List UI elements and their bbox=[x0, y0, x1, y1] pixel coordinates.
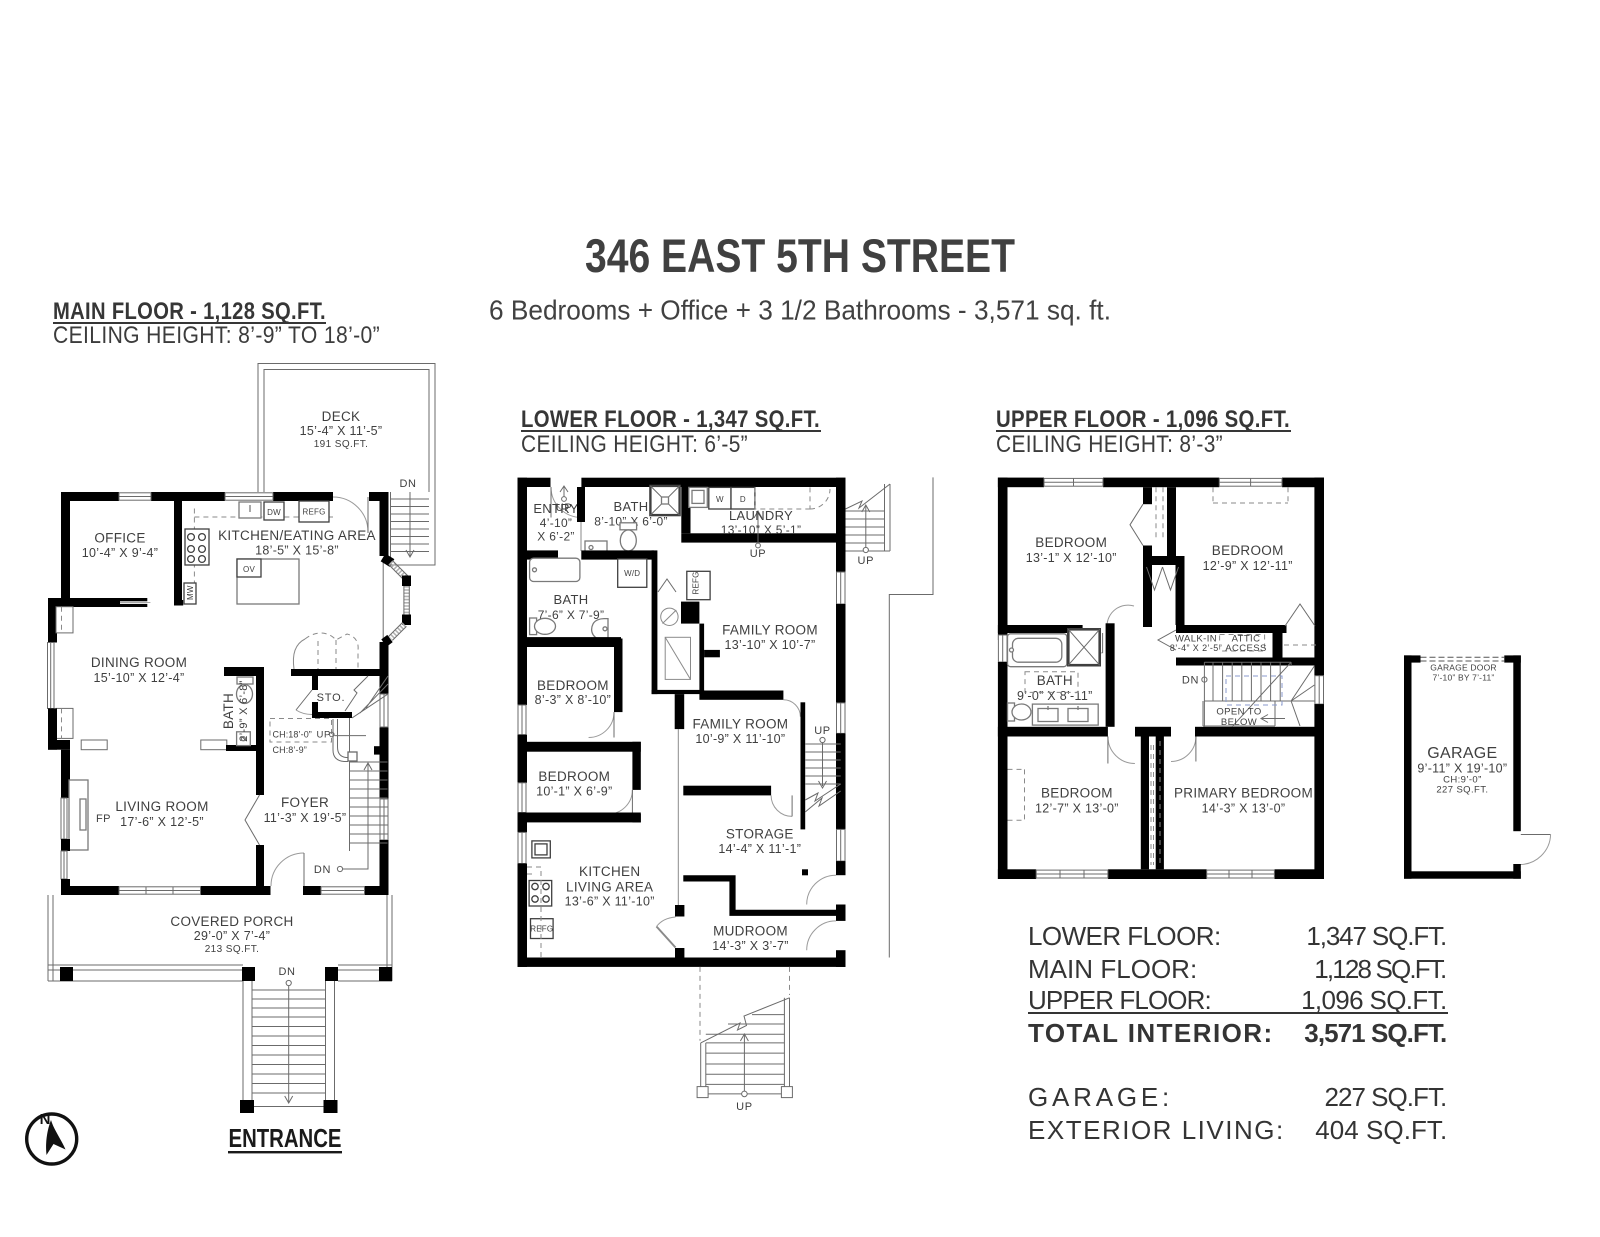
svg-text:13’-1” X 12’-10”: 13’-1” X 12’-10” bbox=[1026, 551, 1117, 565]
svg-text:W/D: W/D bbox=[624, 569, 640, 578]
svg-text:15’-4” X 11’-5”: 15’-4” X 11’-5” bbox=[300, 424, 383, 438]
svg-text:UP: UP bbox=[858, 555, 874, 567]
svg-text:12’-7” X 13’-0”: 12’-7” X 13’-0” bbox=[1035, 802, 1119, 816]
svg-text:MUDROOM: MUDROOM bbox=[713, 924, 788, 939]
svg-text:29’-0” X 7’-4”: 29’-0” X 7’-4” bbox=[194, 929, 270, 943]
svg-text:17’-6” X 12’-5”: 17’-6” X 12’-5” bbox=[120, 815, 204, 829]
svg-text:OFFICE: OFFICE bbox=[94, 531, 145, 546]
svg-text:FOYER: FOYER bbox=[281, 795, 329, 810]
svg-text:UP: UP bbox=[814, 725, 830, 737]
svg-text:191 SQ.FT.: 191 SQ.FT. bbox=[314, 439, 369, 450]
svg-text:LIVING ROOM: LIVING ROOM bbox=[115, 799, 208, 814]
svg-text:DINING ROOM: DINING ROOM bbox=[91, 655, 187, 670]
svg-text:MW: MW bbox=[186, 585, 195, 600]
svg-text:6 Bedrooms + Office + 3 1/2 B: 6 Bedrooms + Office + 3 1/2 Bathrooms - … bbox=[489, 295, 1111, 326]
svg-text:N: N bbox=[40, 1111, 51, 1128]
svg-text:REFG: REFG bbox=[530, 925, 553, 934]
svg-text:FAMILY ROOM: FAMILY ROOM bbox=[692, 717, 788, 732]
svg-text:CEILING HEIGHT: 6’-5”: CEILING HEIGHT: 6’-5” bbox=[521, 431, 748, 458]
svg-text:CEILING HEIGHT: 8’-3”: CEILING HEIGHT: 8’-3” bbox=[996, 431, 1223, 458]
svg-text:1,347 SQ.FT.: 1,347 SQ.FT. bbox=[1306, 921, 1448, 951]
svg-text:4’-10”: 4’-10” bbox=[540, 516, 572, 530]
svg-text:TOTAL INTERIOR:: TOTAL INTERIOR: bbox=[1028, 1018, 1273, 1048]
svg-text:UPPER FLOOR - 1,096 SQ.FT.: UPPER FLOOR - 1,096 SQ.FT. bbox=[996, 406, 1290, 433]
svg-text:EXTERIOR LIVING:: EXTERIOR LIVING: bbox=[1028, 1115, 1284, 1145]
svg-text:DW: DW bbox=[267, 508, 281, 517]
svg-text:UP: UP bbox=[750, 548, 766, 560]
svg-text:14’-3” X 3’-7”: 14’-3” X 3’-7” bbox=[712, 939, 788, 953]
svg-text:ENTRANCE: ENTRANCE bbox=[229, 1123, 342, 1153]
svg-text:LOWER FLOOR - 1,347 SQ.FT.: LOWER FLOOR - 1,347 SQ.FT. bbox=[521, 406, 820, 433]
svg-text:11’-3” X 19’-5”: 11’-3” X 19’-5” bbox=[264, 811, 347, 825]
svg-text:D: D bbox=[740, 495, 746, 504]
svg-text:X 6’-2”: X 6’-2” bbox=[537, 530, 574, 544]
svg-text:LIVING AREA: LIVING AREA bbox=[566, 880, 653, 895]
svg-text:CEILING HEIGHT: 8’-9” TO 18’-0: CEILING HEIGHT: 8’-9” TO 18’-0” bbox=[53, 322, 380, 349]
svg-text:227 SQ.FT.: 227 SQ.FT. bbox=[1325, 1082, 1449, 1112]
svg-text:BELOW: BELOW bbox=[1221, 717, 1257, 728]
svg-text:GARAGE DOOR: GARAGE DOOR bbox=[1430, 663, 1496, 673]
svg-text:3,571 SQ.FT.: 3,571 SQ.FT. bbox=[1304, 1018, 1448, 1048]
svg-text:PRIMARY BEDROOM: PRIMARY BEDROOM bbox=[1174, 786, 1313, 801]
svg-text:COVERED PORCH: COVERED PORCH bbox=[170, 914, 293, 929]
svg-text:KITCHEN/EATING AREA: KITCHEN/EATING AREA bbox=[218, 528, 376, 543]
svg-text:CH:8’-9”: CH:8’-9” bbox=[273, 745, 307, 755]
svg-text:9’-0” X 8’-11”: 9’-0” X 8’-11” bbox=[1017, 689, 1093, 703]
svg-text:MAIN FLOOR:: MAIN FLOOR: bbox=[1028, 954, 1198, 984]
svg-text:W: W bbox=[716, 495, 724, 504]
svg-text:CH:18’-0”: CH:18’-0” bbox=[273, 730, 312, 740]
svg-text:346 EAST 5TH STREET: 346 EAST 5TH STREET bbox=[585, 229, 1015, 282]
svg-text:UP: UP bbox=[317, 730, 331, 741]
svg-text:10’-1” X 6’-9”: 10’-1” X 6’-9” bbox=[536, 785, 612, 799]
svg-text:14’-3” X 13’-0”: 14’-3” X 13’-0” bbox=[1202, 802, 1286, 816]
svg-text:8’-3” X 8’-10”: 8’-3” X 8’-10” bbox=[535, 693, 611, 707]
svg-text:10’-4” X 9’-4”: 10’-4” X 9’-4” bbox=[82, 546, 158, 560]
svg-text:UPPER FLOOR:: UPPER FLOOR: bbox=[1028, 985, 1213, 1015]
svg-text:BEDROOM: BEDROOM bbox=[537, 678, 609, 693]
svg-text:15’-10” X 12’-4”: 15’-10” X 12’-4” bbox=[94, 671, 185, 685]
svg-text:FAMILY ROOM: FAMILY ROOM bbox=[722, 623, 818, 638]
svg-text:BATH: BATH bbox=[1037, 673, 1073, 688]
svg-text:DECK: DECK bbox=[322, 409, 361, 424]
svg-text:13’-6” X 11’-10”: 13’-6” X 11’-10” bbox=[565, 895, 655, 909]
svg-text:BATH: BATH bbox=[221, 693, 236, 729]
svg-text:DN: DN bbox=[278, 966, 295, 978]
svg-text:MAIN FLOOR - 1,128 SQ.FT.: MAIN FLOOR - 1,128 SQ.FT. bbox=[53, 298, 326, 325]
svg-text:13’-10” X 5’-1”: 13’-10” X 5’-1” bbox=[721, 523, 802, 537]
svg-text:LOWER FLOOR:: LOWER FLOOR: bbox=[1028, 921, 1222, 951]
svg-text:BEDROOM: BEDROOM bbox=[1212, 543, 1284, 558]
svg-text:REFG: REFG bbox=[692, 571, 701, 594]
svg-text:DN: DN bbox=[314, 864, 331, 876]
svg-text:KITCHEN: KITCHEN bbox=[579, 864, 640, 879]
svg-text:REFG: REFG bbox=[302, 508, 325, 517]
svg-text:GARAGE: GARAGE bbox=[1427, 745, 1497, 762]
svg-text:BATH: BATH bbox=[554, 592, 589, 607]
svg-text:8’-4” X 2’-5”: 8’-4” X 2’-5” bbox=[1170, 643, 1222, 653]
svg-text:DN: DN bbox=[1182, 675, 1199, 687]
svg-text:14’-4” X 11’-1”: 14’-4” X 11’-1” bbox=[718, 842, 801, 856]
svg-text:OV: OV bbox=[243, 565, 255, 574]
svg-text:18’-5” X 15’-8”: 18’-5” X 15’-8” bbox=[255, 544, 339, 558]
svg-text:227 SQ.FT.: 227 SQ.FT. bbox=[1436, 785, 1488, 796]
svg-text:13’-10” X 10’-7”: 13’-10” X 10’-7” bbox=[725, 638, 816, 652]
svg-text:DN: DN bbox=[399, 478, 416, 490]
svg-text:STORAGE: STORAGE bbox=[726, 827, 794, 842]
svg-text:OPEN TO: OPEN TO bbox=[1216, 707, 1261, 718]
svg-text:ENTRY: ENTRY bbox=[533, 501, 578, 516]
svg-text:404 SQ.FT.: 404 SQ.FT. bbox=[1315, 1115, 1448, 1145]
svg-text:7’-10” BY 7’-11”: 7’-10” BY 7’-11” bbox=[1433, 673, 1495, 683]
svg-text:213 SQ.FT.: 213 SQ.FT. bbox=[205, 944, 260, 955]
svg-text:LAUNDRY: LAUNDRY bbox=[729, 508, 793, 523]
svg-text:1,128 SQ.FT.: 1,128 SQ.FT. bbox=[1314, 954, 1448, 984]
svg-text:BATH: BATH bbox=[614, 499, 649, 514]
svg-text:UP: UP bbox=[736, 1101, 752, 1113]
svg-text:BEDROOM: BEDROOM bbox=[1041, 786, 1113, 801]
svg-text:12’-9” X 12’-11”: 12’-9” X 12’-11” bbox=[1203, 559, 1293, 573]
svg-text:10’-9” X 11’-10”: 10’-9” X 11’-10” bbox=[695, 732, 785, 746]
svg-text:9’-11” X 19’-10”: 9’-11” X 19’-10” bbox=[1417, 762, 1507, 776]
svg-text:BEDROOM: BEDROOM bbox=[538, 769, 610, 784]
svg-text:1,096 SQ.FT.: 1,096 SQ.FT. bbox=[1301, 985, 1448, 1015]
svg-text:BEDROOM: BEDROOM bbox=[1035, 535, 1107, 550]
svg-text:FP: FP bbox=[96, 813, 111, 825]
svg-text:STO.: STO. bbox=[317, 692, 346, 704]
svg-text:ACCESS: ACCESS bbox=[1225, 643, 1266, 654]
svg-text:2’-9” X 6’-8”: 2’-9” X 6’-8” bbox=[238, 680, 250, 741]
